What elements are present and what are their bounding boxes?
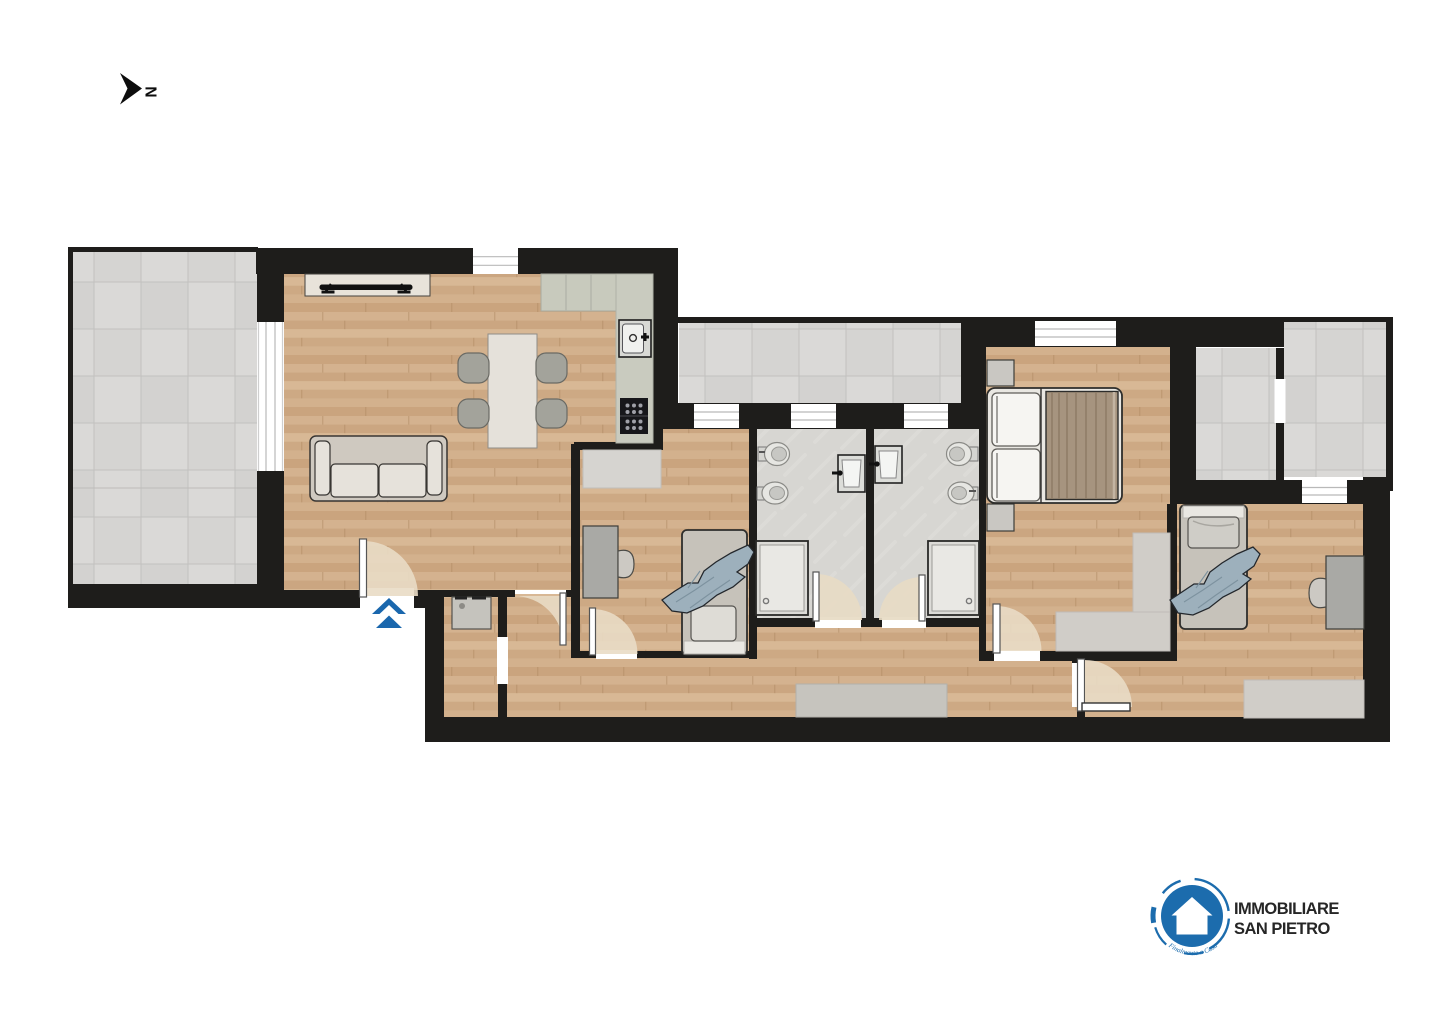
svg-text:IMMOBILIARE: IMMOBILIARE (1234, 900, 1339, 918)
svg-text:SAN PIETRO: SAN PIETRO (1234, 920, 1331, 938)
svg-text:N: N (142, 86, 159, 97)
